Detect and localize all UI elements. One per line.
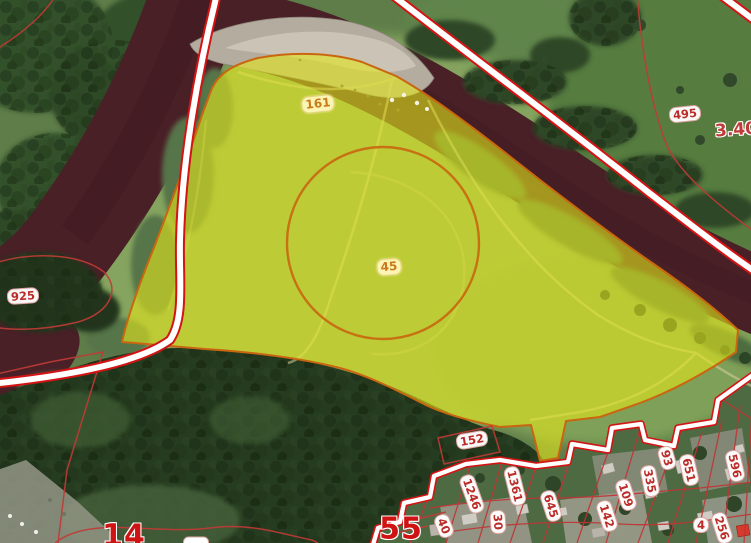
map-canvas[interactable] [0, 0, 751, 543]
red-roof-building [736, 524, 750, 537]
map-root[interactable]: 1614549592515212461361645403093335651596… [0, 0, 751, 543]
